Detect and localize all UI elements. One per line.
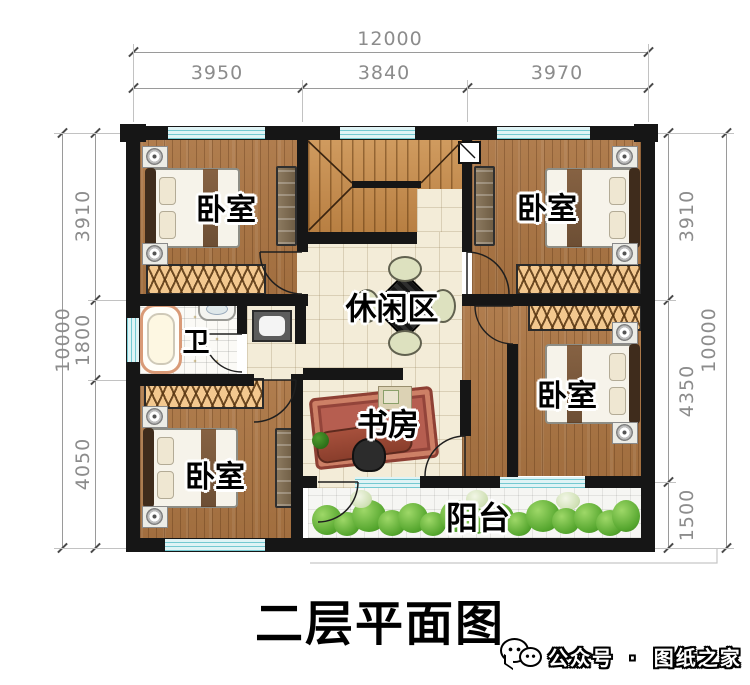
bathtub <box>140 304 182 374</box>
dim-right-seg-2: 4350 <box>676 346 698 436</box>
dim-top-total: 12000 <box>340 28 440 50</box>
room-label-leisure: 休闲区 <box>346 284 439 329</box>
dim-extension <box>655 133 734 134</box>
interior-wall <box>460 380 471 436</box>
interior-wall <box>291 374 303 538</box>
room-label-bath: 卫 <box>183 321 210 360</box>
room-label-bedroom-bottom-right: 卧室 <box>537 371 597 415</box>
dim-extension <box>648 44 649 122</box>
dim-left-total: 10000 <box>52 295 74 385</box>
room-label-bedroom-bottom-left: 卧室 <box>185 452 245 496</box>
interior-wall <box>295 306 306 344</box>
window <box>497 127 590 139</box>
room-label-bedroom-top-left: 卧室 <box>196 185 256 229</box>
pillow <box>159 211 176 239</box>
nightstand <box>612 322 638 344</box>
dim-line-right-segments <box>668 133 669 548</box>
dim-right-seg-1: 3910 <box>676 171 698 261</box>
dim-top-seg-1: 3950 <box>167 62 267 84</box>
room-label-balcony: 阳台 <box>446 493 510 539</box>
nightstand <box>142 506 168 528</box>
watermark-separator: · <box>630 648 639 670</box>
stair-opening <box>417 189 462 232</box>
floor-plan-page: 12000 3950 3840 3970 10000 3910 1800 405… <box>0 0 750 685</box>
bed-headboard <box>143 428 154 508</box>
dim-extension <box>655 548 734 549</box>
pillow <box>609 177 626 205</box>
dim-extension <box>88 380 126 381</box>
room-label-bedroom-top-right: 卧室 <box>517 184 577 228</box>
pillow <box>159 177 176 205</box>
interior-wall <box>297 232 417 244</box>
nightstand <box>142 243 168 265</box>
nightstand <box>142 146 168 168</box>
stair-landing-edge <box>352 181 421 188</box>
wechat-bubble-small <box>519 647 542 667</box>
bed-headboard <box>629 344 640 424</box>
nightstand <box>142 406 168 428</box>
dim-extension <box>54 133 126 134</box>
desk-plant <box>312 432 329 449</box>
dim-top-seg-2: 3840 <box>334 62 434 84</box>
dim-top-seg-3: 3970 <box>507 62 607 84</box>
dim-right-total: 10000 <box>698 295 720 385</box>
balcony-wall <box>303 476 317 488</box>
bed-headboard <box>629 168 640 248</box>
bed-headboard <box>145 168 156 248</box>
window <box>165 539 265 551</box>
dim-extension <box>655 300 676 301</box>
dresser <box>276 166 297 246</box>
closet <box>146 264 266 295</box>
closet <box>516 264 642 295</box>
dim-line-left-segments <box>95 133 96 548</box>
interior-wall <box>303 368 403 380</box>
interior-wall <box>507 344 518 478</box>
corner-pad <box>120 124 146 142</box>
balcony-wall <box>420 476 500 488</box>
interior-wall <box>237 306 247 334</box>
plant-bush <box>350 490 372 508</box>
nightstand <box>612 146 638 168</box>
wechat-icon <box>500 638 542 670</box>
dim-line-top-segments <box>133 88 648 89</box>
pillow <box>157 471 174 499</box>
nightstand <box>612 243 638 265</box>
dim-left-seg-3: 4050 <box>72 419 94 509</box>
interior-wall <box>462 294 641 306</box>
plant-bush <box>612 500 640 532</box>
dim-left-seg-2: 1800 <box>72 295 94 385</box>
flue-shaft <box>458 141 481 164</box>
window <box>355 477 420 488</box>
dim-extension <box>655 482 676 483</box>
dim-line-right-total <box>726 133 727 548</box>
watermark-brand: 图纸之家 <box>654 648 742 670</box>
exterior-wall-right <box>641 126 655 552</box>
dim-extension <box>133 44 134 122</box>
pillow <box>157 437 174 465</box>
dim-extension <box>467 80 468 122</box>
window <box>168 127 265 139</box>
window <box>500 477 585 488</box>
window <box>127 318 139 362</box>
corner-pad <box>634 124 658 142</box>
dim-extension <box>54 548 126 549</box>
interior-wall <box>126 294 308 306</box>
pillow <box>609 211 626 239</box>
dim-right-seg-3: 1500 <box>676 470 698 560</box>
pillow <box>609 387 626 415</box>
dim-line-top-total <box>133 52 648 53</box>
leisure-chair <box>388 256 422 282</box>
watermark-account: 公众号 <box>548 648 614 670</box>
washing-machine <box>252 310 292 342</box>
watermark-text: 公众号 · 图纸之家 <box>548 642 742 671</box>
dim-extension <box>302 80 303 122</box>
dresser <box>474 166 495 246</box>
window <box>340 127 415 139</box>
leisure-chair <box>388 330 422 356</box>
nightstand <box>612 422 638 444</box>
dim-left-seg-1: 3910 <box>72 171 94 261</box>
room-label-study: 书房 <box>357 400 419 445</box>
interior-wall <box>126 374 254 386</box>
dim-extension <box>88 300 126 301</box>
pillow <box>609 353 626 381</box>
balcony-wall <box>585 476 641 488</box>
